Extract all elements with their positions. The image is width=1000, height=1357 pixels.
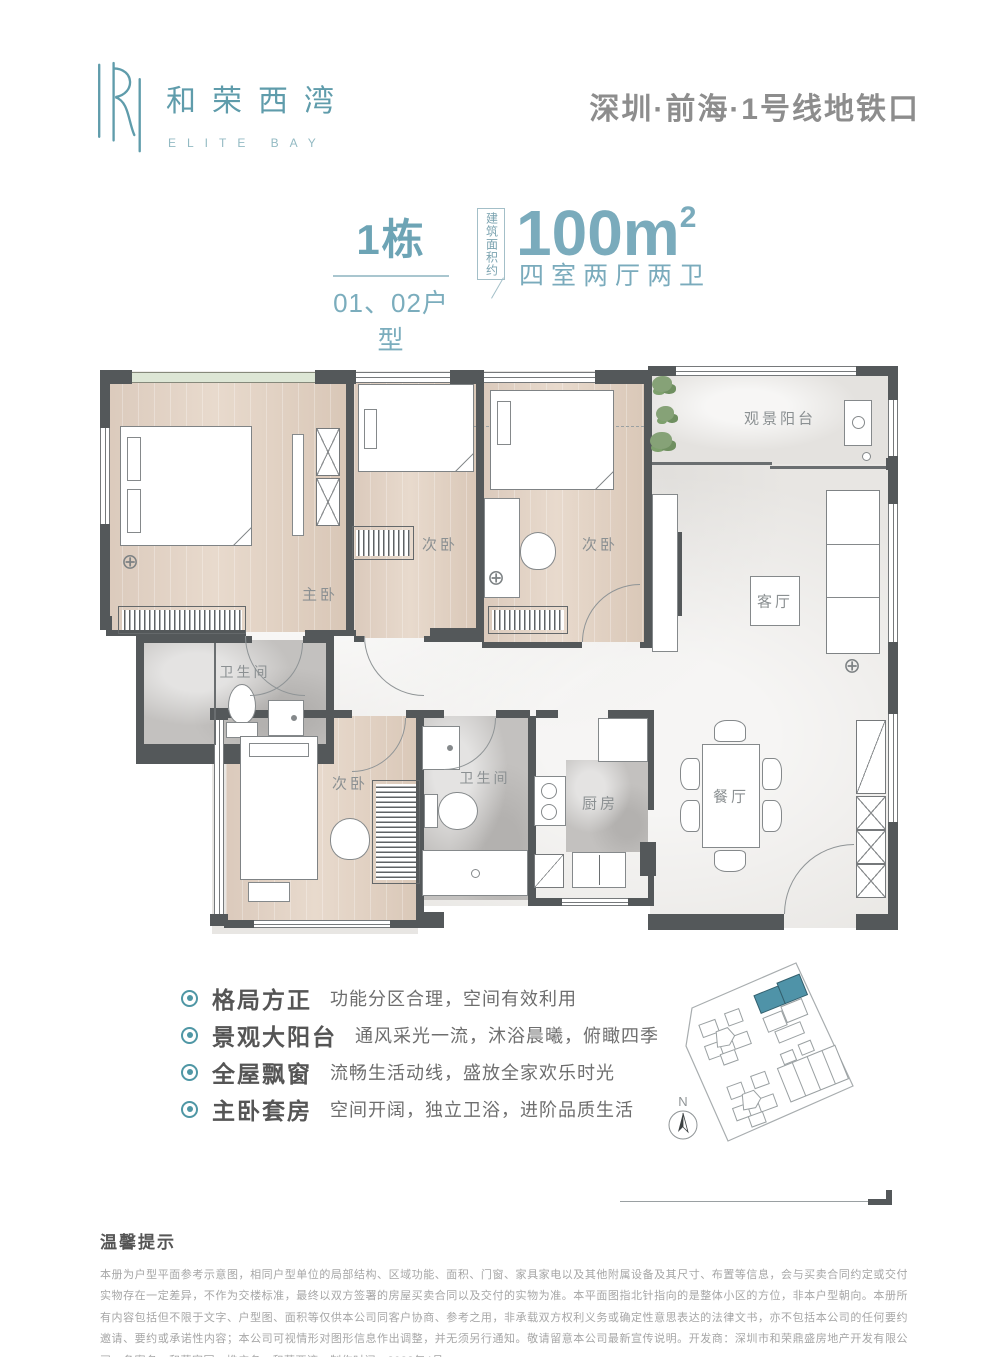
wall-segment xyxy=(608,710,650,718)
mirror-cabinet xyxy=(292,434,304,536)
window xyxy=(254,920,390,928)
brand-name-en: ELITE BAY xyxy=(168,136,350,150)
wall-segment xyxy=(354,636,364,642)
sink-divider xyxy=(599,855,600,885)
corner-mark xyxy=(868,1199,892,1205)
wall-segment xyxy=(482,642,582,648)
brand-text: 和荣西湾 ELITE BAY xyxy=(166,76,350,150)
window xyxy=(484,372,595,383)
wall-segment xyxy=(476,380,484,642)
wall-segment xyxy=(326,636,334,750)
brochure-page: 和荣西湾 ELITE BAY 深圳·前海·1号线地铁口 1栋 01、02户型 建… xyxy=(0,0,1000,1357)
floor-drain-icon xyxy=(862,452,871,461)
burner-icon xyxy=(541,783,557,799)
wall-segment xyxy=(100,524,110,616)
wall-segment xyxy=(422,912,444,928)
feature-list: 格局方正 功能分区合理，空间有效利用 景观大阳台 通风采光一流，沐浴晨曦，俯瞰四… xyxy=(181,986,659,1121)
bedroom3-bed xyxy=(490,390,614,490)
room-label-master: 主卧 xyxy=(302,584,338,605)
room-label-bedroom3: 次卧 xyxy=(582,534,618,555)
room-label-dining: 餐厅 xyxy=(713,786,749,807)
wardrobe xyxy=(316,428,340,476)
bedroom4-bed xyxy=(240,736,318,880)
blanket-fold xyxy=(240,860,260,880)
pillow xyxy=(497,401,511,445)
crosshair-symbol: ⊕ xyxy=(843,656,861,677)
wall-segment xyxy=(888,642,898,714)
wall-segment xyxy=(430,628,478,642)
wall-segment xyxy=(888,366,898,400)
feature-row: 格局方正 功能分区合理，空间有效利用 xyxy=(181,986,659,1010)
feature-desc: 流畅生活动线，盛放全家欢乐时光 xyxy=(330,1059,615,1085)
wall-segment xyxy=(886,458,898,470)
wall-segment xyxy=(528,898,562,906)
wall-segment xyxy=(390,920,426,928)
window xyxy=(214,720,224,916)
bedroom2-dresser xyxy=(352,526,414,560)
feature-desc: 空间开阔，独立卫浴，进阶品质生活 xyxy=(330,1096,634,1122)
tv-cabinet xyxy=(652,494,678,652)
wall-segment xyxy=(100,370,110,428)
location-tagline: 深圳·前海·1号线地铁口 xyxy=(589,84,920,128)
sliding-door xyxy=(648,462,772,465)
sliding-door xyxy=(770,466,892,469)
bullet-icon xyxy=(181,990,198,1007)
site-plan: N xyxy=(640,948,930,1178)
wardrobe xyxy=(316,478,340,526)
wall-segment xyxy=(210,708,228,720)
floor-plan: ⊕ ⊕ ⊕ xyxy=(100,366,898,934)
room-label-kitchen: 厨房 xyxy=(582,793,618,814)
burner-icon xyxy=(541,804,557,820)
floor-drain-icon xyxy=(471,869,480,878)
disclaimer-title: 温馨提示 xyxy=(100,1228,908,1253)
wall-segment xyxy=(136,636,144,750)
feature-row: 景观大阳台 通风采光一流，沐浴晨曦，俯瞰四季 xyxy=(181,1023,659,1047)
plant-icon xyxy=(652,376,672,392)
shower-tray xyxy=(422,850,528,896)
blanket-fold xyxy=(232,526,252,546)
feature-title: 景观大阳台 xyxy=(212,1018,337,1052)
bedroom4-wardrobe xyxy=(372,780,420,884)
bullet-icon xyxy=(181,1064,198,1081)
disclaimer: 温馨提示 本册为户型平面参考示意图，相同户型单位的局部结构、区域功能、面积、门窗… xyxy=(100,1228,908,1357)
toilet xyxy=(438,792,478,830)
kitchen-sink xyxy=(572,852,626,888)
floor-outside-mask xyxy=(140,764,212,934)
feature-title: 主卧套房 xyxy=(212,1092,312,1126)
compass-icon: N xyxy=(669,1094,697,1139)
shower-divider xyxy=(214,643,216,745)
bedside-bench xyxy=(248,882,290,902)
feature-row: 全屋飘窗 流畅生活动线，盛放全家欢乐时光 xyxy=(181,1060,659,1084)
wall-segment xyxy=(536,710,558,718)
blanket-fold xyxy=(594,470,614,490)
brand-monogram-icon xyxy=(92,58,146,158)
bedroom3-dresser xyxy=(488,606,568,634)
plant-icon xyxy=(656,406,674,421)
bedroom2-bed xyxy=(358,384,474,472)
room-label-bathroom1: 卫生间 xyxy=(220,662,271,682)
bullet-icon xyxy=(181,1101,198,1118)
wall-segment xyxy=(100,616,112,630)
entry-panel xyxy=(856,720,886,794)
room-label-bedroom4: 次卧 xyxy=(332,773,368,794)
wall-segment xyxy=(888,822,898,930)
pillow xyxy=(364,409,377,449)
dining-chair xyxy=(714,720,746,742)
window xyxy=(132,372,315,383)
wall-segment xyxy=(640,842,656,876)
bullet-icon xyxy=(181,1027,198,1044)
bathroom-sink xyxy=(268,700,304,736)
title-underline xyxy=(333,275,449,277)
wall-segment xyxy=(136,636,252,643)
master-dresser xyxy=(118,606,246,634)
dining-chair xyxy=(714,850,746,872)
area-prefix-box: 建筑面积约 xyxy=(477,208,505,280)
feature-title: 全屋飘窗 xyxy=(212,1055,312,1089)
room-label-living: 客厅 xyxy=(757,591,793,612)
feature-desc: 通风采光一流，沐浴晨曦，俯瞰四季 xyxy=(355,1022,659,1048)
dining-chair xyxy=(680,758,700,790)
plant-icon xyxy=(650,432,672,449)
floor-outside-mask xyxy=(100,628,140,934)
upper-cabinet xyxy=(598,718,648,762)
feature-row: 主卧套房 空间开阔，独立卫浴，进阶品质生活 xyxy=(181,1097,659,1121)
window xyxy=(356,372,450,383)
master-bed xyxy=(120,426,252,546)
window xyxy=(100,428,110,524)
washer-door-icon xyxy=(852,416,865,429)
room-label-bathroom2: 卫生间 xyxy=(460,768,511,788)
window xyxy=(888,504,898,642)
blanket-fold xyxy=(454,452,474,472)
building-outlines xyxy=(696,999,848,1132)
crosshair-symbol: ⊕ xyxy=(487,568,505,589)
window xyxy=(888,714,898,822)
window xyxy=(562,898,628,906)
dining-chair xyxy=(680,800,700,832)
wall-segment xyxy=(644,374,652,648)
shoe-cabinet xyxy=(856,796,886,830)
feature-title: 格局方正 xyxy=(212,981,312,1015)
desk-chair xyxy=(520,532,556,570)
window xyxy=(676,366,856,376)
dining-chair xyxy=(762,800,782,832)
brand-logo: 和荣西湾 ELITE BAY xyxy=(92,58,350,158)
room-layout-text: 四室两厅两卫 xyxy=(519,256,711,292)
wall-segment xyxy=(648,366,676,376)
wall-segment xyxy=(416,710,444,718)
pillow xyxy=(127,489,141,533)
brand-name-cn: 和荣西湾 xyxy=(166,76,350,120)
pillow xyxy=(127,437,141,481)
fridge xyxy=(534,854,564,888)
unit-types: 01、02户型 xyxy=(333,283,449,357)
area-slash-mark xyxy=(491,277,504,298)
sofa xyxy=(826,490,880,654)
tv-screen xyxy=(678,532,682,616)
dining-chair xyxy=(762,758,782,790)
wall-segment xyxy=(628,898,650,906)
floor-outside-mask xyxy=(418,906,650,934)
wall-segment xyxy=(644,458,652,470)
room-label-bedroom2: 次卧 xyxy=(422,534,458,555)
disclaimer-body: 本册为户型平面参考示意图，相同户型单位的局部结构、区域功能、面积、门窗、家具家电… xyxy=(100,1265,908,1357)
wall-segment xyxy=(648,710,654,810)
stove xyxy=(534,776,566,826)
crosshair-symbol: ⊕ xyxy=(121,552,139,573)
wall-segment xyxy=(224,920,254,928)
washing-machine xyxy=(844,400,872,446)
area-sup: 2 xyxy=(680,201,697,234)
corner-rule-line xyxy=(620,1201,874,1202)
building-number: 1栋 xyxy=(333,206,449,267)
compass-north-label: N xyxy=(678,1094,687,1109)
chair xyxy=(330,818,370,860)
wall-segment xyxy=(496,710,530,718)
pillow xyxy=(249,743,309,757)
feature-desc: 功能分区合理，空间有效利用 xyxy=(330,985,577,1011)
wall-segment xyxy=(648,914,784,930)
building-title: 1栋 01、02户型 xyxy=(333,206,449,357)
shoe-cabinet xyxy=(856,830,886,864)
wall-segment xyxy=(595,370,648,384)
toilet-tank xyxy=(424,794,438,828)
floor-outside-mask xyxy=(100,366,648,371)
shoe-cabinet xyxy=(856,864,886,898)
window xyxy=(888,400,898,456)
sink-drain-icon xyxy=(291,715,297,721)
room-label-balcony: 观景阳台 xyxy=(744,408,816,429)
wall-segment xyxy=(346,380,354,636)
